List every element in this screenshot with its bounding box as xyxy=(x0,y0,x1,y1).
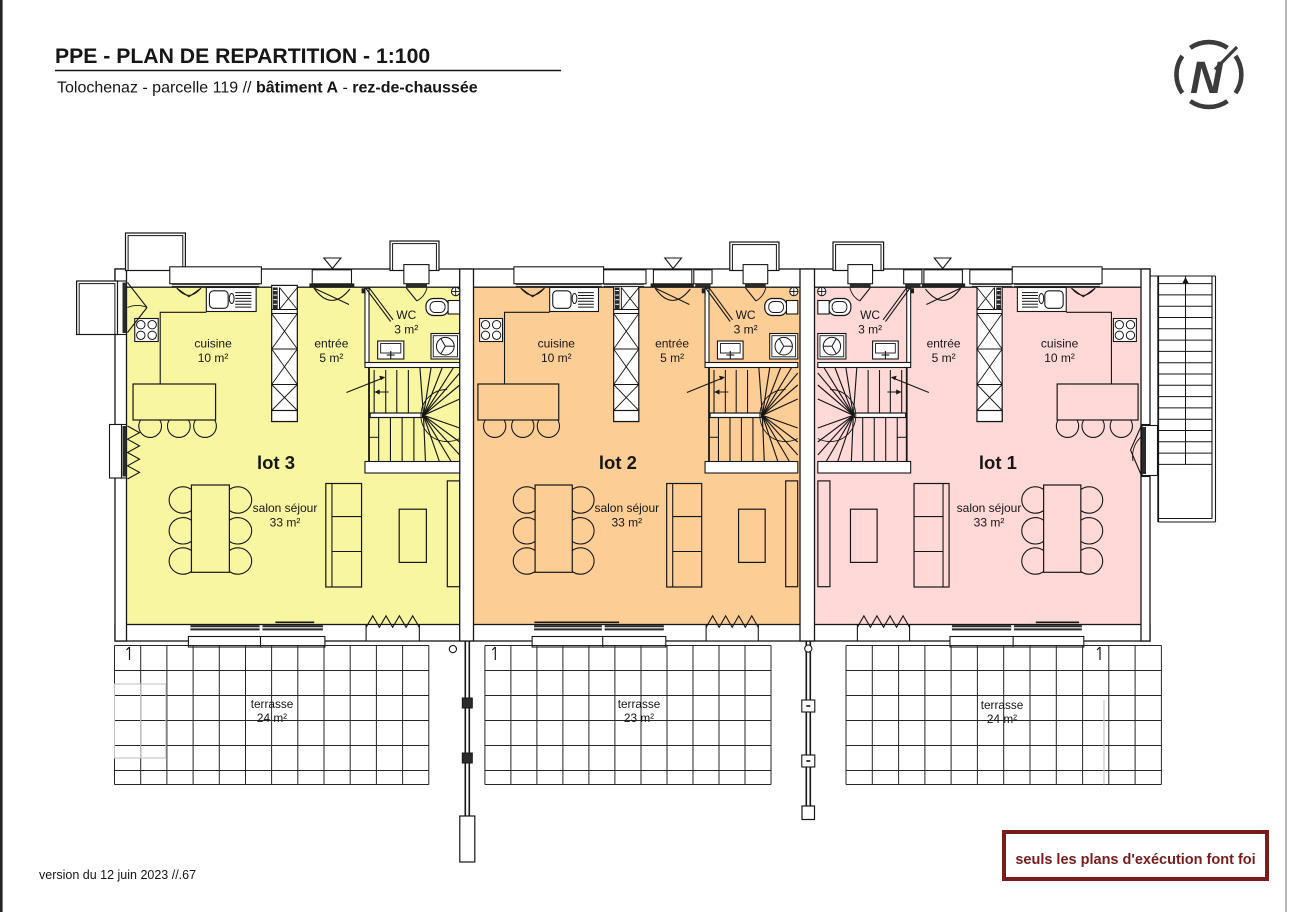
svg-text:seuls les plans d'exécution fo: seuls les plans d'exécution font foi xyxy=(1015,852,1255,868)
svg-text:33 m²: 33 m² xyxy=(270,516,301,530)
svg-text:WC: WC xyxy=(736,308,756,322)
svg-text:salon séjour: salon séjour xyxy=(957,501,1022,515)
svg-text:24 m²: 24 m² xyxy=(987,712,1017,726)
svg-text:salon séjour: salon séjour xyxy=(253,501,318,515)
svg-text:33 m²: 33 m² xyxy=(611,516,642,530)
svg-text:3 m²: 3 m² xyxy=(734,323,758,337)
svg-text:PPE - PLAN DE REPARTITION - 1:: PPE - PLAN DE REPARTITION - 1:100 xyxy=(55,45,430,68)
svg-text:terrasse: terrasse xyxy=(251,697,294,711)
svg-text:terrasse: terrasse xyxy=(981,698,1024,712)
svg-text:cuisine: cuisine xyxy=(538,337,576,351)
svg-text:5 m²: 5 m² xyxy=(660,351,684,365)
svg-text:N: N xyxy=(1190,52,1224,103)
svg-text:5 m²: 5 m² xyxy=(319,351,343,365)
svg-text:lot 3: lot 3 xyxy=(257,452,295,473)
svg-text:10 m²: 10 m² xyxy=(541,351,572,365)
svg-text:entrée: entrée xyxy=(314,337,348,351)
svg-text:10 m²: 10 m² xyxy=(1044,351,1075,365)
svg-text:10 m²: 10 m² xyxy=(198,351,229,365)
svg-text:cuisine: cuisine xyxy=(194,337,232,351)
svg-text:salon séjour: salon séjour xyxy=(594,501,659,515)
svg-text:lot 2: lot 2 xyxy=(599,452,637,473)
svg-text:entrée: entrée xyxy=(927,337,961,351)
svg-text:3 m²: 3 m² xyxy=(394,323,418,337)
svg-text:lot 1: lot 1 xyxy=(979,452,1017,473)
svg-text:3 m²: 3 m² xyxy=(858,323,882,337)
svg-text:WC: WC xyxy=(860,308,880,322)
svg-text:terrasse: terrasse xyxy=(618,697,661,711)
svg-text:23 m²: 23 m² xyxy=(624,711,654,725)
svg-text:cuisine: cuisine xyxy=(1041,337,1079,351)
svg-text:entrée: entrée xyxy=(655,337,689,351)
svg-text:version du 12 juin 2023 //.67: version du 12 juin 2023 //.67 xyxy=(39,868,196,882)
svg-text:WC: WC xyxy=(396,308,416,322)
svg-text:5 m²: 5 m² xyxy=(932,351,956,365)
svg-text:24 m²: 24 m² xyxy=(257,711,287,725)
svg-text:33 m²: 33 m² xyxy=(974,516,1005,530)
svg-text:Tolochenaz - parcelle 119 // b: Tolochenaz - parcelle 119 // bâtiment A … xyxy=(57,80,478,97)
